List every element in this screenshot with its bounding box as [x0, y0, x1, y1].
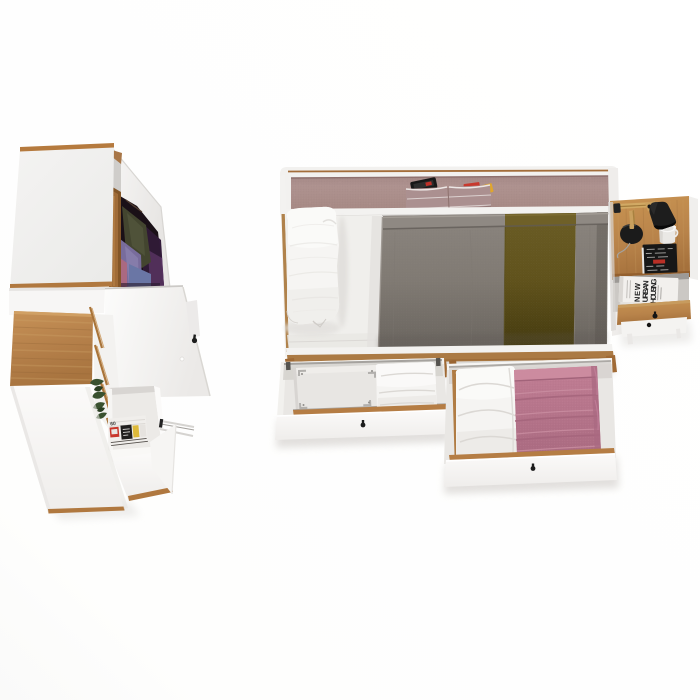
svg-text:HOUSING: HOUSING	[649, 278, 659, 303]
svg-text:60: 60	[110, 421, 116, 427]
